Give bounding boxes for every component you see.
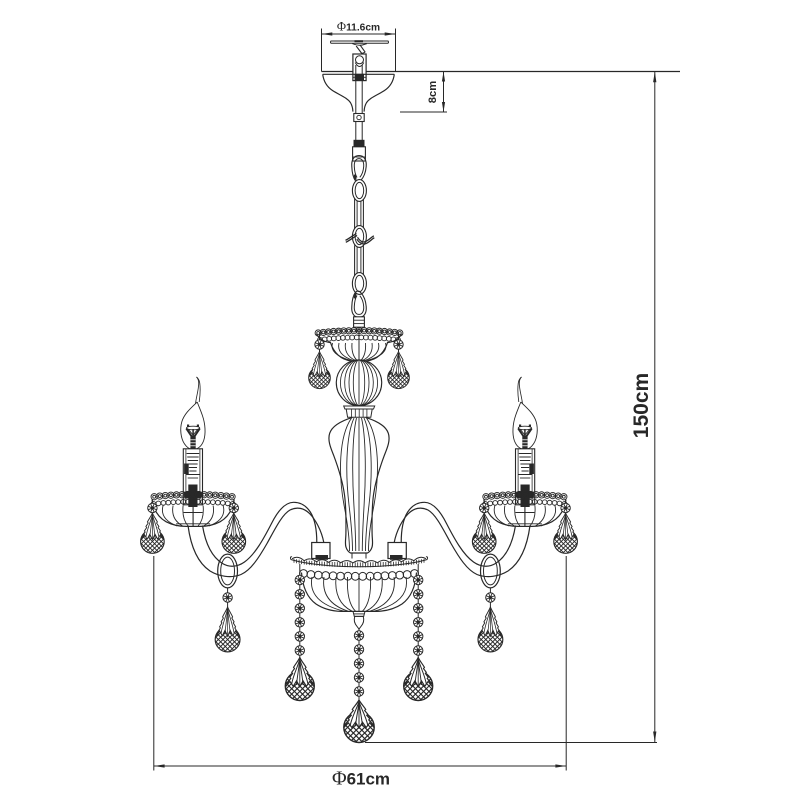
svg-text:Φ61cm: Φ61cm	[332, 768, 390, 790]
svg-text:Φ11.6cm: Φ11.6cm	[337, 20, 380, 34]
svg-text:150cm: 150cm	[630, 373, 653, 438]
svg-text:8cm: 8cm	[427, 81, 439, 103]
